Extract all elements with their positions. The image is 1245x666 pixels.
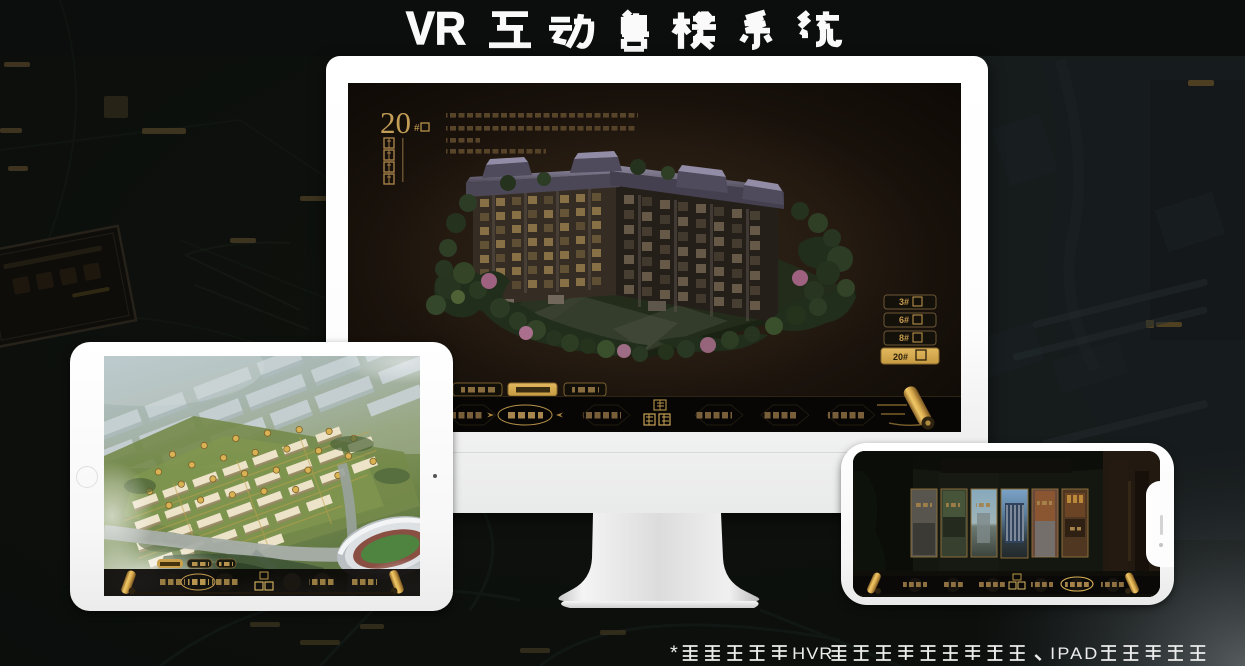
svg-text:8#: 8# — [899, 333, 909, 343]
svg-text:20#: 20# — [893, 352, 908, 362]
svg-text:3#: 3# — [899, 297, 909, 307]
svg-text:*: * — [670, 643, 678, 664]
svg-text:VR: VR — [406, 2, 466, 54]
svg-text:20: 20 — [380, 105, 411, 140]
svg-text:#: # — [414, 122, 420, 134]
svg-text:6#: 6# — [899, 315, 909, 325]
svg-text:IPAD: IPAD — [1050, 643, 1099, 662]
svg-text:HVR: HVR — [792, 643, 833, 662]
